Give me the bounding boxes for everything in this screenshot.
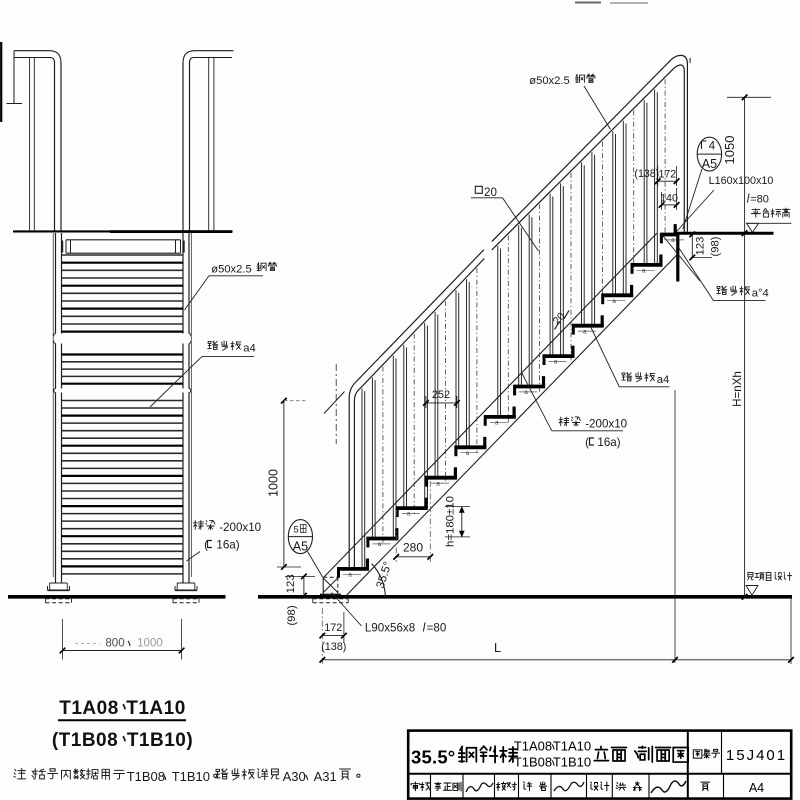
svg-text:a4: a4 [657, 374, 669, 386]
svg-text:T1B10: T1B10 [172, 769, 210, 784]
svg-text:T1B10: T1B10 [553, 755, 591, 770]
svg-text:a: a [612, 298, 616, 305]
svg-text:a: a [378, 541, 382, 548]
svg-text:16a): 16a) [597, 436, 620, 449]
svg-text:-200x10: -200x10 [585, 418, 627, 431]
svg-text:T1A10: T1A10 [553, 739, 591, 754]
svg-text:123: 123 [695, 237, 707, 256]
svg-text:T1A10: T1A10 [126, 698, 186, 719]
svg-text:(138): (138) [321, 641, 346, 653]
svg-text:(98): (98) [286, 605, 298, 625]
svg-text:L90x56x8: L90x56x8 [365, 622, 415, 635]
svg-text:a: a [583, 328, 587, 335]
svg-text:(138): (138) [634, 168, 659, 180]
svg-text:a: a [466, 450, 470, 457]
svg-text:a°4: a°4 [752, 288, 769, 300]
svg-text:15J401: 15J401 [726, 747, 787, 764]
svg-text:A5: A5 [702, 157, 717, 171]
svg-text:20: 20 [484, 186, 497, 199]
svg-text:172: 172 [658, 168, 676, 180]
svg-text:-200x10: -200x10 [219, 521, 261, 534]
svg-text:ø50x2.5: ø50x2.5 [529, 75, 569, 87]
svg-text:1000: 1000 [266, 469, 280, 497]
svg-text:l: l [423, 621, 426, 635]
svg-text:T1A08: T1A08 [59, 698, 119, 719]
svg-text:a: a [671, 237, 675, 244]
svg-text:a: a [642, 268, 646, 275]
svg-text:ø50x2.5: ø50x2.5 [211, 263, 251, 275]
svg-text:1050: 1050 [722, 136, 737, 165]
svg-text:T1A08: T1A08 [514, 739, 552, 754]
svg-text:(98): (98) [710, 236, 722, 256]
svg-text:A30: A30 [283, 769, 306, 784]
svg-text:A5: A5 [293, 540, 308, 554]
svg-text:a4: a4 [243, 343, 255, 355]
svg-text:T1B08: T1B08 [514, 755, 552, 770]
svg-text:a: a [407, 511, 411, 518]
svg-text:a: a [524, 389, 528, 396]
svg-text:A31: A31 [314, 769, 337, 784]
svg-text:=80: =80 [427, 622, 447, 635]
svg-text:35.5°: 35.5° [411, 747, 455, 768]
svg-text:5: 5 [293, 525, 298, 536]
svg-text:123: 123 [285, 574, 297, 593]
svg-text:=80: =80 [750, 194, 769, 206]
svg-text:172: 172 [324, 622, 342, 634]
svg-text:(: ( [585, 436, 589, 449]
svg-text:a: a [495, 420, 499, 427]
svg-text:A4: A4 [749, 781, 764, 795]
svg-text:4: 4 [709, 141, 716, 153]
svg-text:L: L [494, 641, 501, 655]
svg-text:a: a [348, 572, 352, 579]
svg-text:800: 800 [105, 637, 124, 650]
svg-text:a: a [554, 359, 558, 366]
svg-text:280: 280 [403, 541, 423, 555]
svg-text:(T1B08: (T1B08 [52, 730, 118, 751]
svg-text:a: a [436, 480, 440, 487]
svg-text:T1B10): T1B10) [127, 730, 193, 751]
svg-text:h=180±10: h=180±10 [445, 496, 457, 547]
svg-text:16a): 16a) [216, 539, 239, 552]
svg-text:L160x100x10: L160x100x10 [709, 175, 774, 187]
svg-text:T1B08: T1B08 [127, 769, 165, 784]
svg-text:H=nXh: H=nXh [731, 371, 744, 407]
svg-text:252: 252 [432, 389, 450, 401]
svg-text:140: 140 [660, 192, 678, 204]
svg-text:1000: 1000 [137, 637, 163, 650]
